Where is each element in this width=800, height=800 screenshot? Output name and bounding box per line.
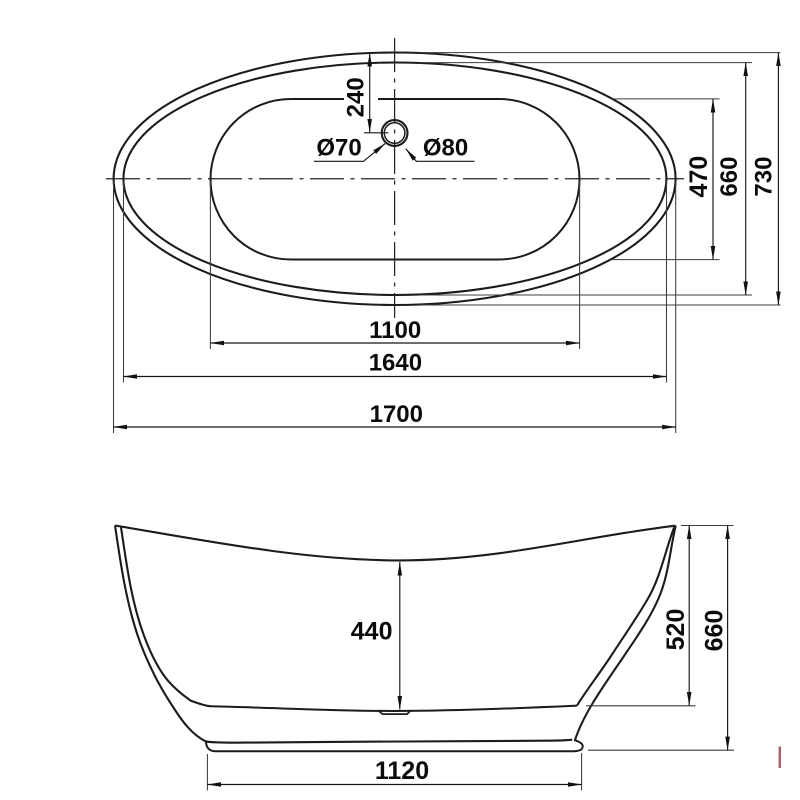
svg-text:660: 660 bbox=[716, 157, 743, 197]
svg-text:Ø70: Ø70 bbox=[316, 135, 361, 162]
svg-text:240: 240 bbox=[343, 77, 370, 117]
svg-text:1640: 1640 bbox=[369, 350, 422, 377]
svg-text:440: 440 bbox=[351, 618, 393, 646]
svg-text:1120: 1120 bbox=[375, 757, 429, 785]
svg-text:660: 660 bbox=[701, 610, 729, 652]
svg-text:470: 470 bbox=[685, 156, 713, 198]
svg-text:1700: 1700 bbox=[370, 401, 423, 428]
svg-text:520: 520 bbox=[662, 609, 690, 651]
svg-text:1100: 1100 bbox=[369, 317, 421, 344]
svg-text:730: 730 bbox=[751, 157, 778, 197]
svg-text:Ø80: Ø80 bbox=[423, 135, 468, 162]
